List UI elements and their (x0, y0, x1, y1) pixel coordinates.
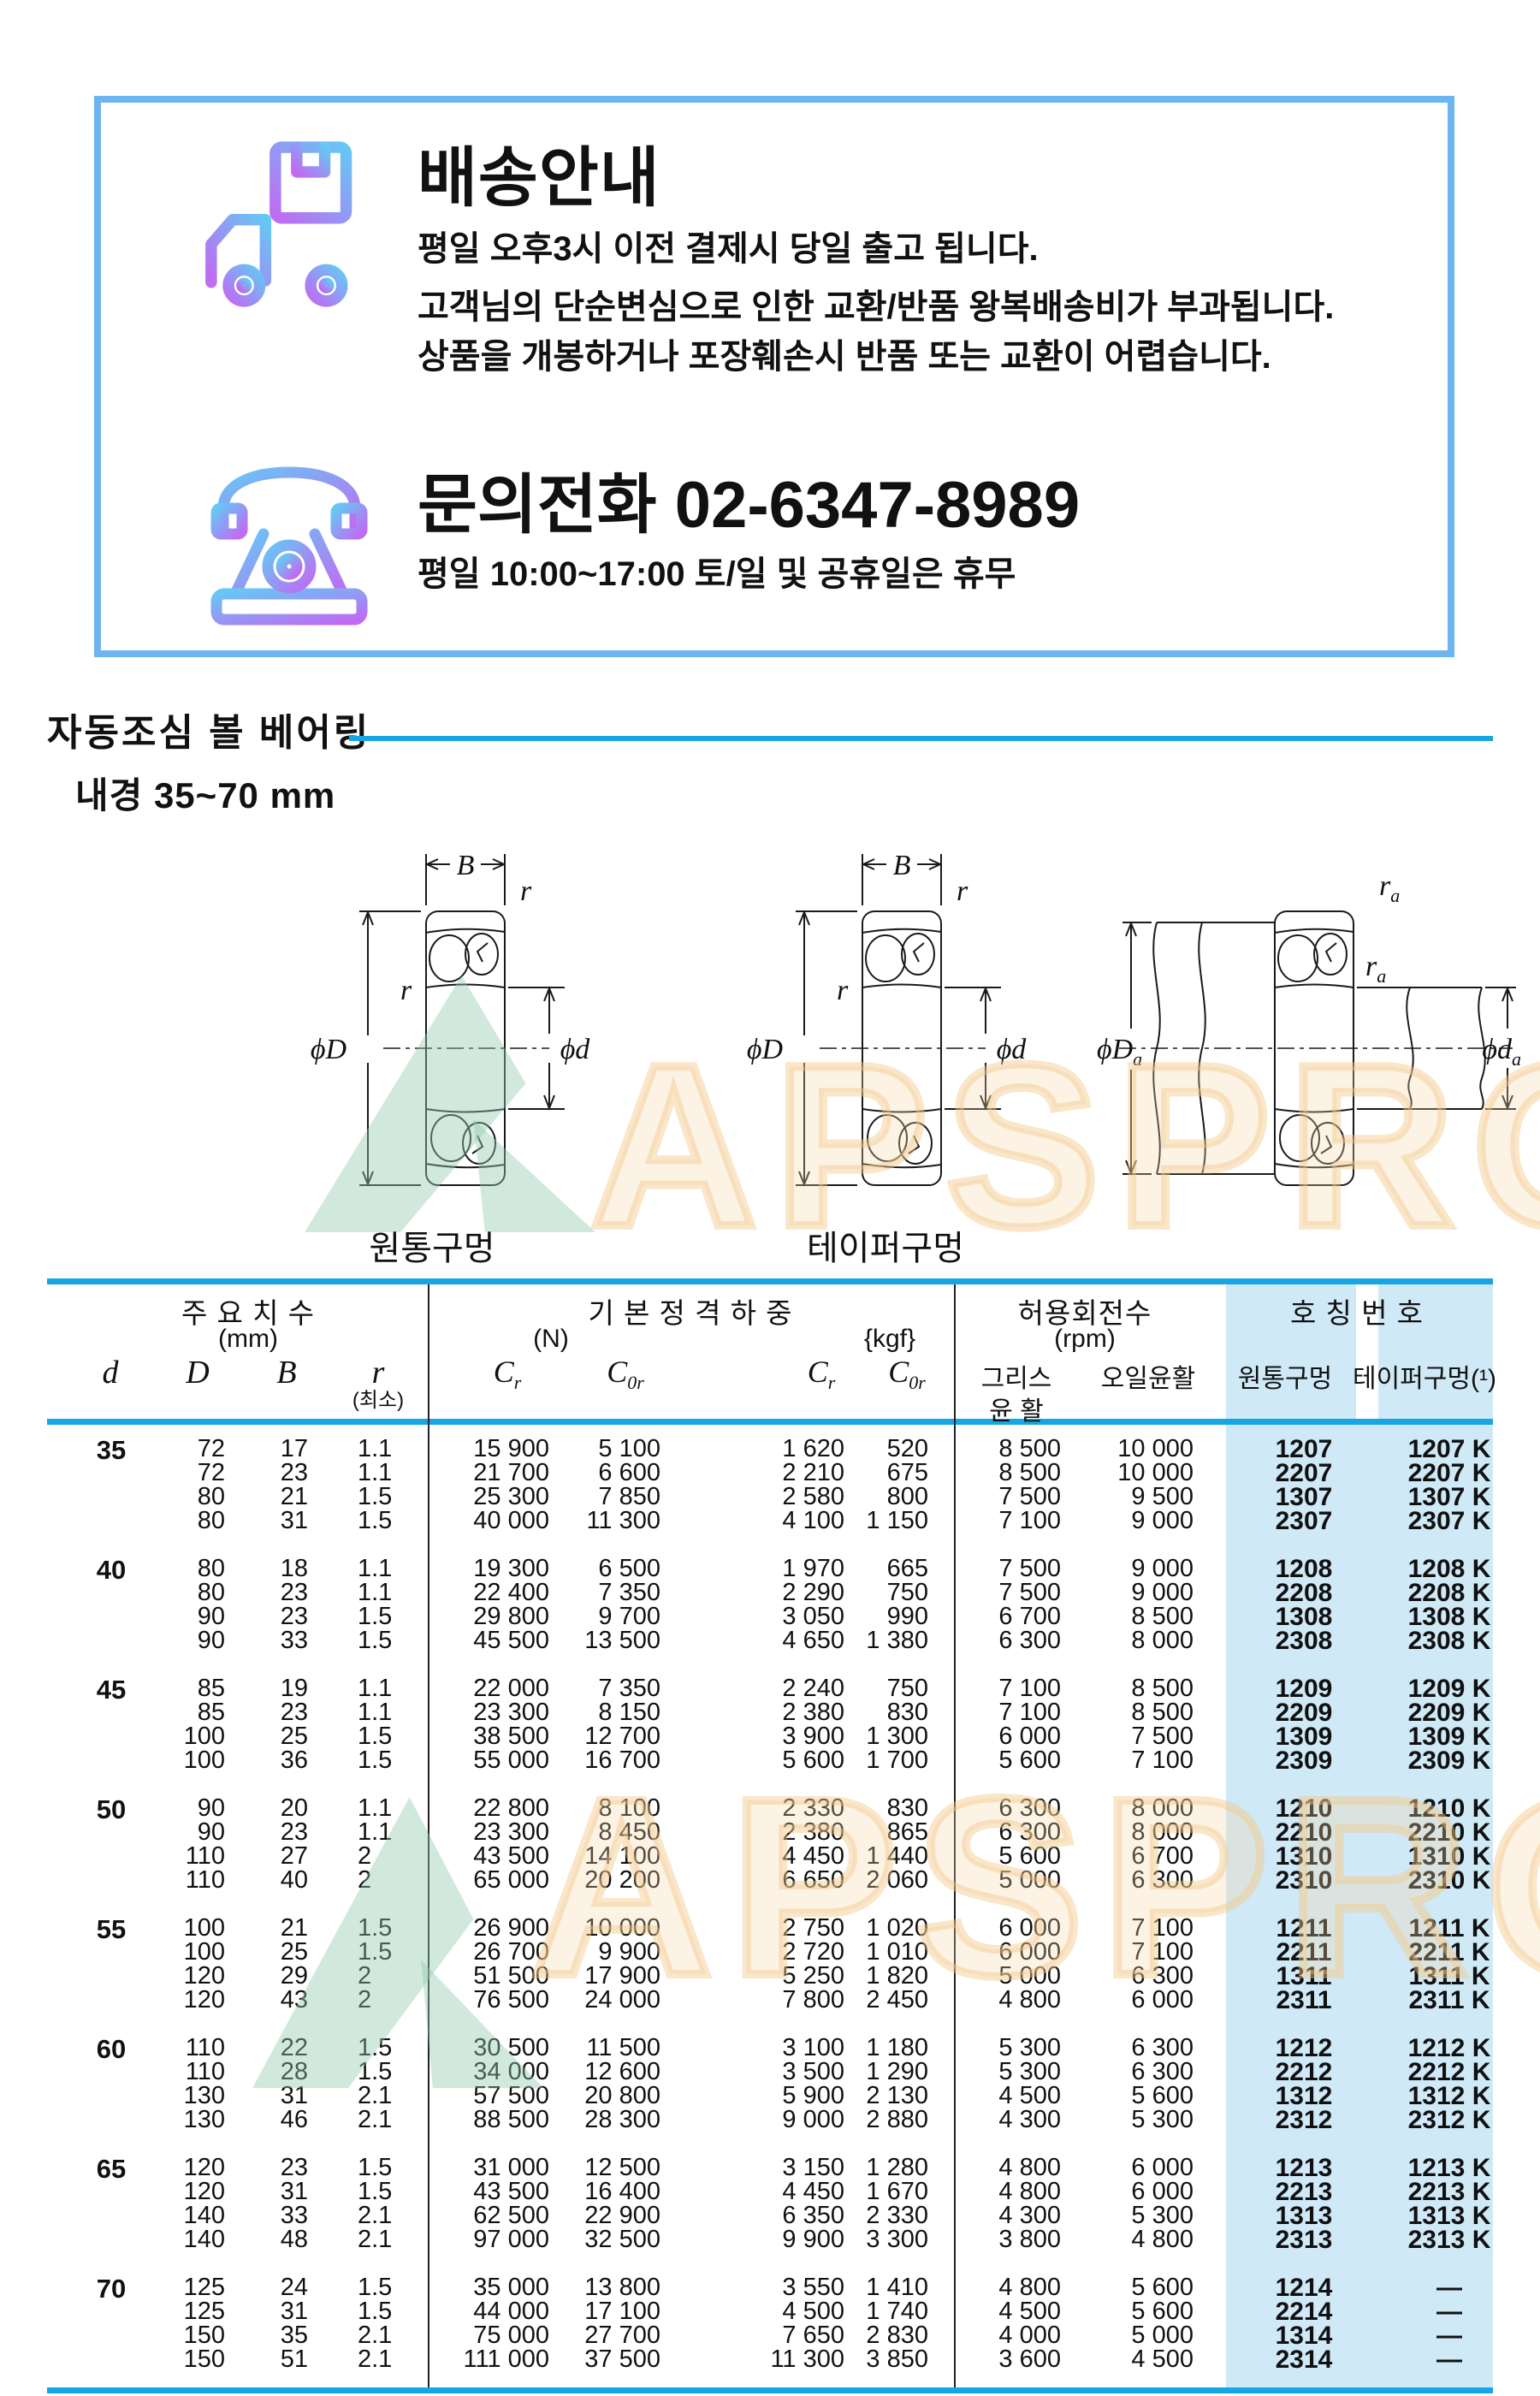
dim-phiD-label: ϕD (747, 1034, 784, 1065)
table-rule-header (47, 1419, 1493, 1425)
delivery-truck-icon (187, 132, 400, 337)
table-row: 3572171.115 9005 1001 6205208 50010 0001… (47, 1435, 1493, 1461)
table-cell: 48 (281, 2226, 308, 2254)
table-cell: 120 (184, 1986, 225, 2014)
contact-phone-number: 문의전화 02-6347-8989 (418, 452, 1080, 546)
table-cell: 5 000 (998, 1866, 1061, 1895)
table-row: 70125241.535 00013 8003 5501 4104 8005 6… (47, 2274, 1493, 2299)
table-row: 90231.123 3008 4502 3808656 3008 0002210… (47, 1818, 1493, 1844)
table-cell: 2 (358, 1986, 371, 2014)
dim-phida-label: ϕda (1482, 1034, 1521, 1070)
table-cell: 55 000 (473, 1747, 549, 1775)
table-cell: 32 500 (584, 2226, 660, 2254)
section-rule (349, 736, 1493, 741)
table-cell: 2309 K (1347, 1747, 1540, 1776)
table-cell: 16 700 (584, 1747, 660, 1775)
table-cell: 40 000 (473, 1507, 549, 1535)
dim-r-label: r (400, 975, 412, 1006)
table-cell: 100 (184, 1747, 225, 1775)
table-cell: 2307 K (1347, 1507, 1540, 1536)
table-cell: 1 700 (866, 1747, 928, 1775)
dim-r-label: r (520, 875, 532, 907)
table-cell: 37 500 (584, 2346, 660, 2374)
table-cell: 130 (184, 2106, 225, 2134)
header-tapered-bore: 테이퍼구멍(¹) (1330, 1357, 1519, 1395)
table-cell: 80 (198, 1507, 225, 1535)
header-bearing-number: 호 칭 번 호 (1220, 1290, 1494, 1331)
table-row: 4080181.119 3006 5001 9706657 5009 00012… (47, 1555, 1493, 1581)
shipping-line-2: 고객님의 단순변심으로 인한 교환/반품 왕복배송비가 부과됩니다. (418, 279, 1334, 329)
table-cell: 2 880 (866, 2106, 928, 2134)
table-cell: 51 (281, 2346, 308, 2374)
product-detail-page: 배송안내 평일 오후3시 이전 결제시 당일 출고 됩니다. 고객님의 단순변심… (0, 0, 1540, 2396)
table-cell: 33 (281, 1627, 308, 1655)
header-newton-unit: (N) (465, 1325, 637, 1354)
shipping-info-box: 배송안내 평일 오후3시 이전 결제시 당일 출고 됩니다. 고객님의 단순변심… (94, 96, 1454, 657)
table-cell: 2311 K (1347, 1986, 1540, 2015)
table-cell: 90 (198, 1627, 225, 1655)
bearing-spec-table: 주 요 치 수 (mm) 기 본 정 격 하 중 (N) {kgf} 허용회전수… (47, 1278, 1493, 2394)
label-tapered-bore: 테이퍼구멍 (774, 1220, 997, 1270)
bearing-diagram-mounted: ra ra ϕDa ϕda (1095, 813, 1523, 1232)
table-cell: 28 300 (584, 2106, 660, 2134)
dim-phiDa-label: ϕDa (1097, 1034, 1142, 1070)
table-cell: 76 500 (473, 1986, 549, 2014)
dim-phid-label: ϕd (997, 1034, 1028, 1065)
table-cell: 31 (281, 1507, 308, 1535)
header-D: D (146, 1354, 249, 1391)
table-row: 11027243 50014 1004 4501 4405 6006 70013… (47, 1842, 1493, 1868)
table-cell: 46 (281, 2106, 308, 2134)
table-cell: 7 100 (998, 1507, 1061, 1535)
table-row: 120311.543 50016 4004 4501 6704 8006 000… (47, 2178, 1493, 2203)
table-cell: 140 (184, 2226, 225, 2254)
table-cell: 6 650 (782, 1866, 844, 1895)
table-cell: 2 (358, 1866, 371, 1895)
table-cell: 2 060 (866, 1866, 928, 1895)
table-cell: 6 300 (998, 1627, 1061, 1655)
table-cell: 11 300 (586, 1507, 660, 1535)
table-row: 85231.123 3008 1502 3808307 1008 5002209… (47, 1699, 1493, 1724)
table-row: 11040265 00020 2006 6502 0605 0006 30023… (47, 1866, 1493, 1892)
table-cell: 4 800 (998, 1986, 1061, 2014)
business-hours: 평일 10:00~17:00 토/일 및 공휴일은 휴무 (418, 546, 1016, 596)
table-cell: 2310 K (1347, 1866, 1540, 1895)
table-cell: 36 (281, 1747, 308, 1775)
table-cell: 6 300 (1131, 1866, 1193, 1895)
label-cylindrical-bore: 원통구멍 (321, 1220, 543, 1270)
table-cell: 3 300 (866, 2226, 928, 2254)
bore-range-subtitle: 내경 35~70 mm (75, 767, 335, 819)
phone-icon (191, 445, 388, 633)
table-row: 130312.157 50020 8005 9002 1304 5005 600… (47, 2082, 1493, 2108)
table-cell: 111 000 (463, 2346, 549, 2374)
dim-phid-label: ϕd (560, 1034, 591, 1065)
shipping-line-3: 상품을 개봉하거나 포장훼손시 반품 또는 교환이 어렵습니다. (418, 329, 1271, 378)
table-row: 80231.122 4007 3502 2907507 5009 0002208… (47, 1579, 1493, 1604)
dim-r-label: r (957, 875, 968, 907)
table-row: 72231.121 7006 6002 2106758 50010 000220… (47, 1459, 1493, 1485)
shipping-title: 배송안내 (418, 125, 660, 219)
table-cell: 1 150 (866, 1507, 928, 1535)
table-cell: 88 500 (473, 2106, 549, 2134)
section-title: 자동조심 볼 베어링 (47, 702, 370, 756)
table-cell: 4 650 (782, 1627, 844, 1655)
table-row: 100251.538 50012 7003 9001 3006 0007 500… (47, 1723, 1493, 1748)
table-cell: 8 000 (1131, 1627, 1193, 1655)
table-cell: 97 000 (473, 2226, 549, 2254)
table-cell: 4 800 (1131, 2226, 1193, 2254)
table-cell: 6 000 (1131, 1986, 1193, 2014)
table-cell: 3 800 (998, 2226, 1061, 2254)
dim-B-label: B (893, 850, 911, 881)
table-cell: 2 450 (866, 1986, 928, 2014)
table-cell: 3 850 (866, 2346, 928, 2374)
table-cell: 40 (281, 1866, 308, 1895)
shipping-line-1: 평일 오후3시 이전 결제시 당일 출고 됩니다. (418, 221, 1039, 270)
table-cell: 4 100 (782, 1507, 844, 1535)
table-cell: 5 600 (998, 1747, 1061, 1775)
table-cell: 11 300 (770, 2346, 844, 2374)
table-row: 65120231.531 00012 5003 1501 2804 8006 0… (47, 2154, 1493, 2180)
table-rule-top (47, 1278, 1493, 1284)
table-row: 55100211.526 90010 0002 7501 0206 0007 1… (47, 1914, 1493, 1940)
table-cell: 43 (281, 1986, 308, 2014)
table-cell: 20 200 (584, 1866, 660, 1895)
table-row: 125311.544 00017 1004 5001 7404 5005 600… (47, 2298, 1493, 2323)
table-cell: — (1347, 2346, 1540, 2375)
table-row: 80211.525 3007 8502 5808007 5009 5001307… (47, 1483, 1493, 1509)
table-cell: 65 000 (473, 1866, 549, 1895)
dim-phiD-label: ϕD (311, 1034, 347, 1065)
table-row: 110281.534 00012 6003 5001 2905 3006 300… (47, 2058, 1493, 2084)
table-cell: 13 500 (584, 1627, 660, 1655)
header-C0r-N: C0r (566, 1354, 685, 1394)
header-Cr-N: Cr (447, 1354, 567, 1394)
table-row: 150512.1111 00037 50011 3003 8503 6004 5… (47, 2346, 1493, 2371)
table-row: 150352.175 00027 7007 6502 8304 0005 000… (47, 2322, 1493, 2347)
dim-B-label: B (457, 850, 475, 881)
table-cell: 1.5 (358, 1747, 392, 1775)
table-cell: 2.1 (358, 2346, 392, 2374)
table-row: 140332.162 50022 9006 3502 3304 3005 300… (47, 2202, 1493, 2227)
table-cell: 9 000 (1131, 1507, 1193, 1535)
header-mm-unit: (mm) (163, 1325, 334, 1354)
table-row: 90231.529 8009 7003 0509906 7008 5001308… (47, 1603, 1493, 1628)
table-row: 12029251 50017 9005 2501 8205 0006 30013… (47, 1962, 1493, 1988)
table-cell: 4 300 (998, 2106, 1061, 2134)
table-row: 80311.540 00011 3004 1001 1507 1009 0002… (47, 1507, 1493, 1533)
table-cell: 7 100 (1131, 1747, 1193, 1775)
table-cell: 4 500 (1131, 2346, 1193, 2374)
table-cell: 9 900 (782, 2226, 844, 2254)
table-row: 60110221.530 50011 5003 1001 1805 3006 3… (47, 2034, 1493, 2060)
table-row: 100251.526 7009 9002 7201 0106 0007 1002… (47, 1938, 1493, 1964)
dim-ra-label: ra (1365, 951, 1386, 987)
table-row: 5090201.122 8008 1002 3308306 3008 00012… (47, 1794, 1493, 1820)
bearing-diagram-tapered-bore: B r r ϕD ϕd (710, 813, 1069, 1232)
table-row: 130462.188 50028 3009 0002 8804 3005 300… (47, 2106, 1493, 2132)
table-row: 140482.197 00032 5009 9003 3003 8004 800… (47, 2226, 1493, 2251)
table-cell: 24 000 (584, 1986, 660, 2014)
header-rpm-unit: (rpm) (999, 1325, 1170, 1354)
header-r-min: (최소) (318, 1383, 438, 1413)
table-row: 12043276 50024 0007 8002 4504 8006 00023… (47, 1986, 1493, 2012)
table-cell: 2312 K (1347, 2106, 1540, 2135)
table-cell: 7 800 (782, 1986, 844, 2014)
table-cell: 2308 K (1347, 1627, 1540, 1656)
table-row: 90331.545 50013 5004 6501 3806 3008 0002… (47, 1627, 1493, 1652)
table-cell: 45 500 (473, 1627, 549, 1655)
table-row: 4585191.122 0007 3502 2407507 1008 50012… (47, 1675, 1493, 1700)
table-cell: 1.5 (358, 1627, 392, 1655)
dim-ra-label: ra (1379, 870, 1400, 906)
table-row: 100361.555 00016 7005 6001 7005 6007 100… (47, 1747, 1493, 1772)
table-cell: 5 300 (1131, 2106, 1193, 2134)
bearing-diagram-cylindrical-bore: B r r ϕD ϕd (274, 813, 633, 1232)
dim-r-label: r (837, 975, 849, 1006)
table-cell: 2313 K (1347, 2226, 1540, 2255)
header-grease-lub-2: 윤 활 (922, 1390, 1111, 1427)
table-cell: 110 (186, 1866, 225, 1895)
table-cell: 2.1 (358, 2106, 392, 2134)
table-rule-bottom (47, 2387, 1493, 2393)
table-cell: 5 600 (782, 1747, 844, 1775)
table-cell: 1.5 (358, 1507, 392, 1535)
table-cell: 2.1 (358, 2226, 392, 2254)
table-cell: 9 000 (782, 2106, 844, 2134)
table-cell: 150 (184, 2346, 225, 2374)
table-cell: 3 600 (998, 2346, 1061, 2374)
table-cell: 1 380 (866, 1627, 928, 1655)
